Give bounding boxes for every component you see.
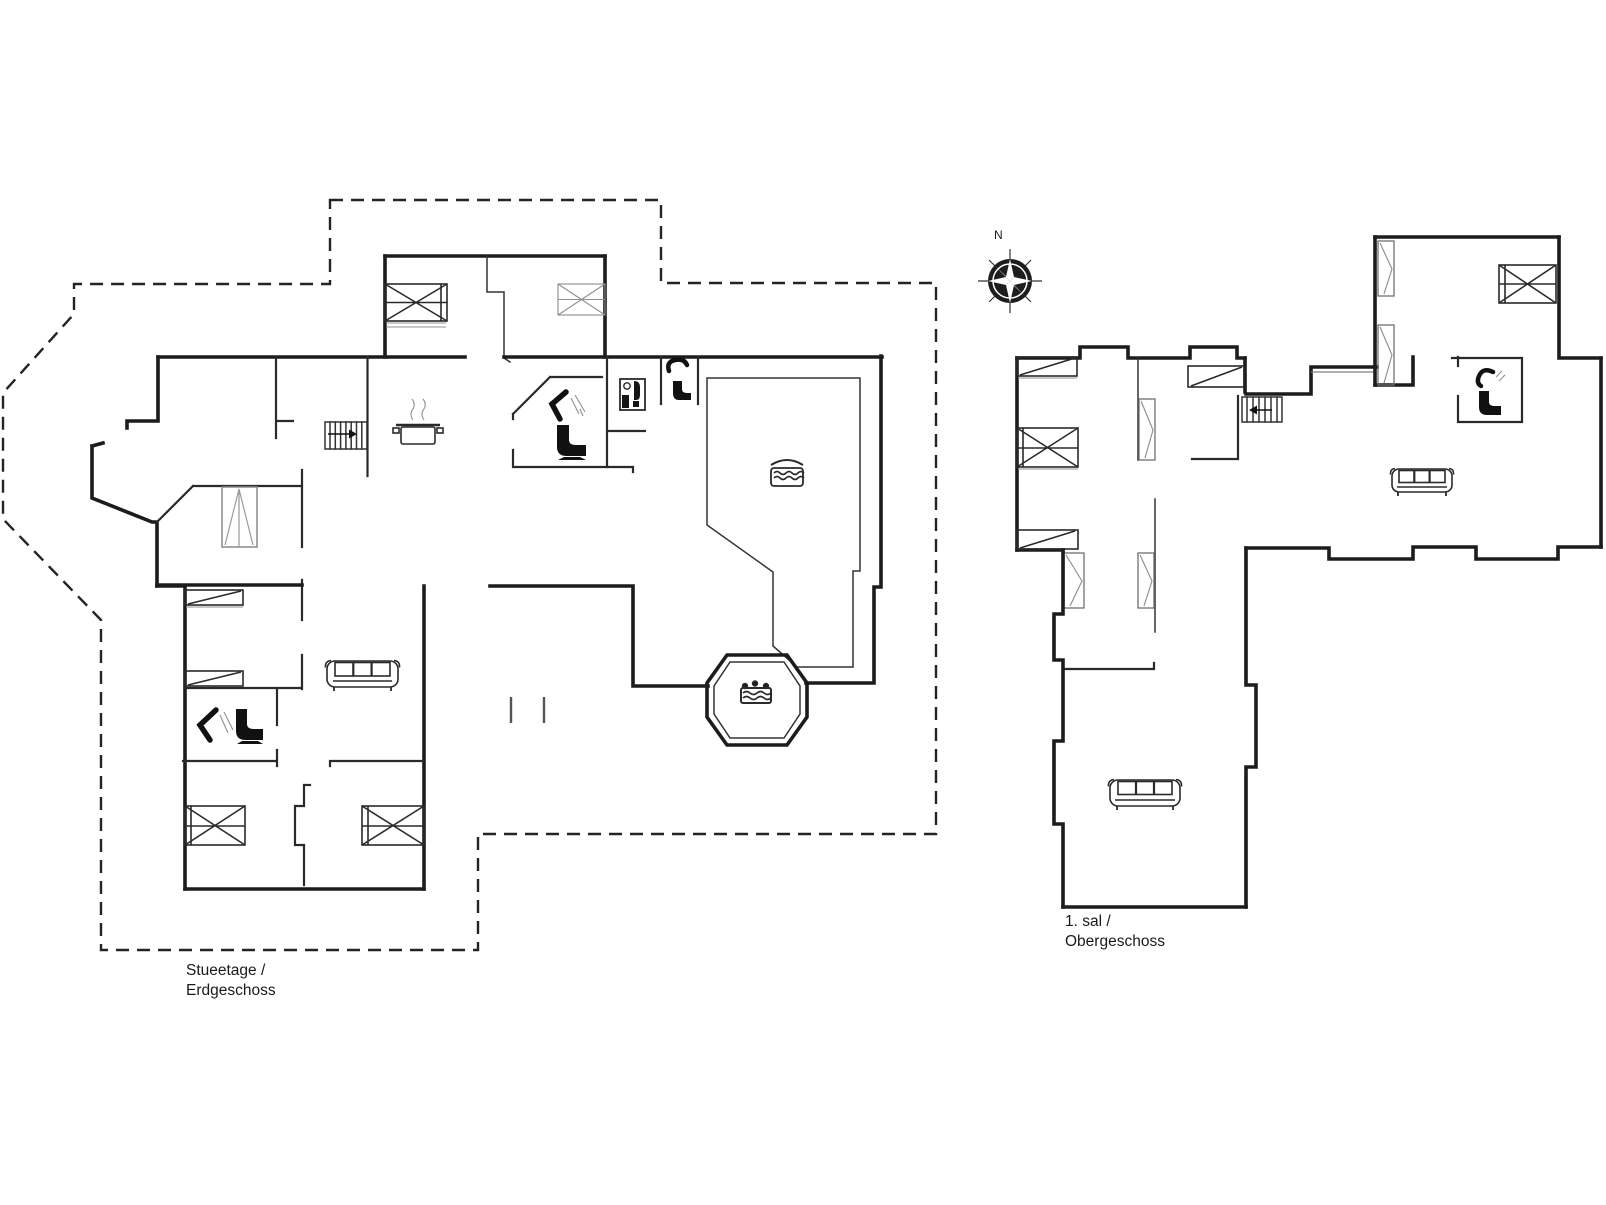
svg-text:Obergeschoss: Obergeschoss [1065,933,1165,950]
svg-text:Stueetage /: Stueetage / [186,962,266,979]
svg-text:N: N [994,228,1003,242]
svg-text:Erdgeschoss: Erdgeschoss [186,982,276,999]
svg-text:1. sal /: 1. sal / [1065,913,1111,930]
